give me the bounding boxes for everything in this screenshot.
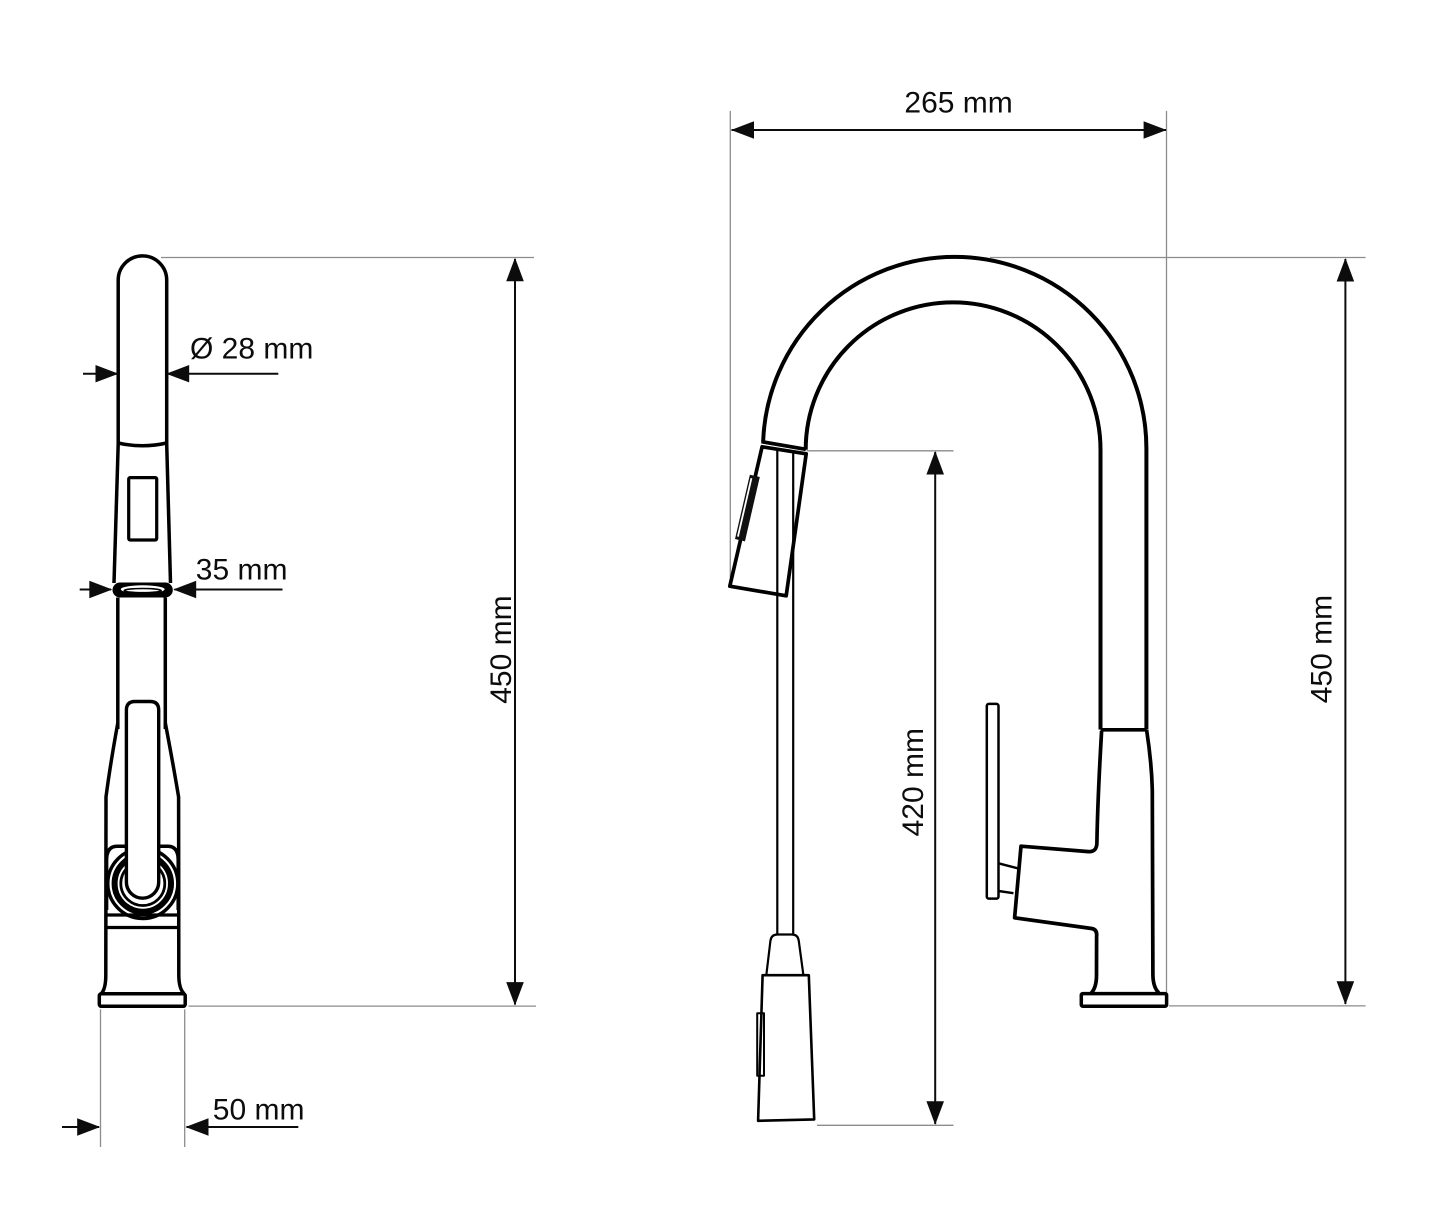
- svg-text:450 mm: 450 mm: [485, 595, 518, 703]
- svg-text:450 mm: 450 mm: [1306, 595, 1339, 703]
- svg-text:420 mm: 420 mm: [897, 728, 930, 836]
- svg-text:Ø 28 mm: Ø 28 mm: [190, 333, 313, 366]
- svg-text:35 mm: 35 mm: [196, 553, 288, 586]
- svg-text:265 mm: 265 mm: [904, 87, 1012, 120]
- svg-text:50 mm: 50 mm: [213, 1093, 305, 1126]
